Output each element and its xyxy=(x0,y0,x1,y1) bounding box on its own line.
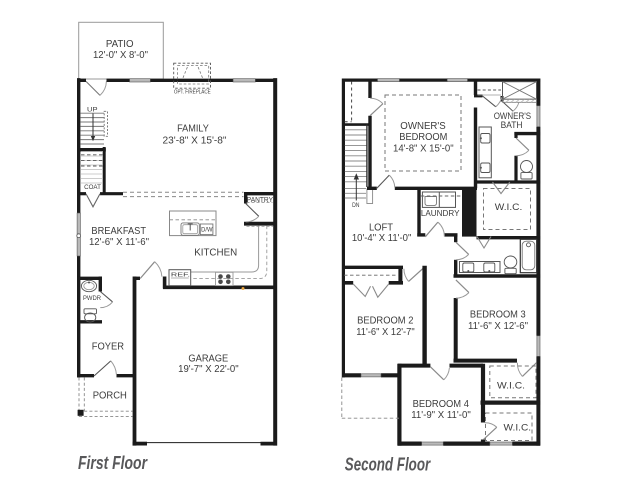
svg-text:D/W: D/W xyxy=(201,227,212,234)
svg-text:GARAGE: GARAGE xyxy=(188,354,228,365)
svg-text:LOFT: LOFT xyxy=(369,223,393,234)
svg-text:Second Floor: Second Floor xyxy=(345,454,431,474)
svg-text:PORCH: PORCH xyxy=(93,391,127,402)
svg-text:BEDROOM: BEDROOM xyxy=(399,132,447,143)
svg-text:BATH: BATH xyxy=(501,120,523,130)
svg-text:FAMILY: FAMILY xyxy=(177,123,209,134)
svg-text:OPT. FIREPLACE: OPT. FIREPLACE xyxy=(174,90,211,96)
svg-text:OWNER'S: OWNER'S xyxy=(400,121,446,132)
svg-text:BEDROOM 4: BEDROOM 4 xyxy=(413,399,470,410)
svg-text:23'-8" X 15'-8": 23'-8" X 15'-8" xyxy=(163,135,228,146)
svg-text:W.I.C.: W.I.C. xyxy=(495,202,523,212)
svg-text:COAT: COAT xyxy=(84,184,101,191)
svg-text:DN: DN xyxy=(352,202,360,209)
svg-text:BEDROOM 3: BEDROOM 3 xyxy=(470,310,526,321)
svg-text:LAUNDRY: LAUNDRY xyxy=(421,209,460,218)
svg-text:FOYER: FOYER xyxy=(92,341,124,352)
svg-text:12'-6" X 11'-6": 12'-6" X 11'-6" xyxy=(89,237,150,248)
svg-text:BREAKFAST: BREAKFAST xyxy=(91,226,146,237)
svg-text:PWDR: PWDR xyxy=(83,295,101,302)
svg-text:11'-9" X 11'-0": 11'-9" X 11'-0" xyxy=(411,410,471,421)
svg-text:First Floor: First Floor xyxy=(78,453,148,473)
svg-text:BEDROOM 2: BEDROOM 2 xyxy=(357,315,414,326)
svg-text:W.I.C.: W.I.C. xyxy=(504,423,532,433)
svg-text:14'-8" X 15'-0": 14'-8" X 15'-0" xyxy=(393,144,454,155)
svg-text:UP: UP xyxy=(87,107,98,114)
svg-text:10'-4" X 11'-0": 10'-4" X 11'-0" xyxy=(352,233,412,244)
svg-text:W.I.C.: W.I.C. xyxy=(497,381,525,391)
svg-text:KITCHEN: KITCHEN xyxy=(194,247,237,258)
svg-text:PATIO: PATIO xyxy=(106,39,134,50)
svg-text:11'-6" X 12'-6": 11'-6" X 12'-6" xyxy=(468,321,529,332)
svg-text:11'-6" X 12'-7": 11'-6" X 12'-7" xyxy=(356,327,415,338)
svg-text:12'-0" X 8'-0": 12'-0" X 8'-0" xyxy=(93,50,148,61)
svg-text:19'-7" X 22'-0": 19'-7" X 22'-0" xyxy=(178,364,239,375)
